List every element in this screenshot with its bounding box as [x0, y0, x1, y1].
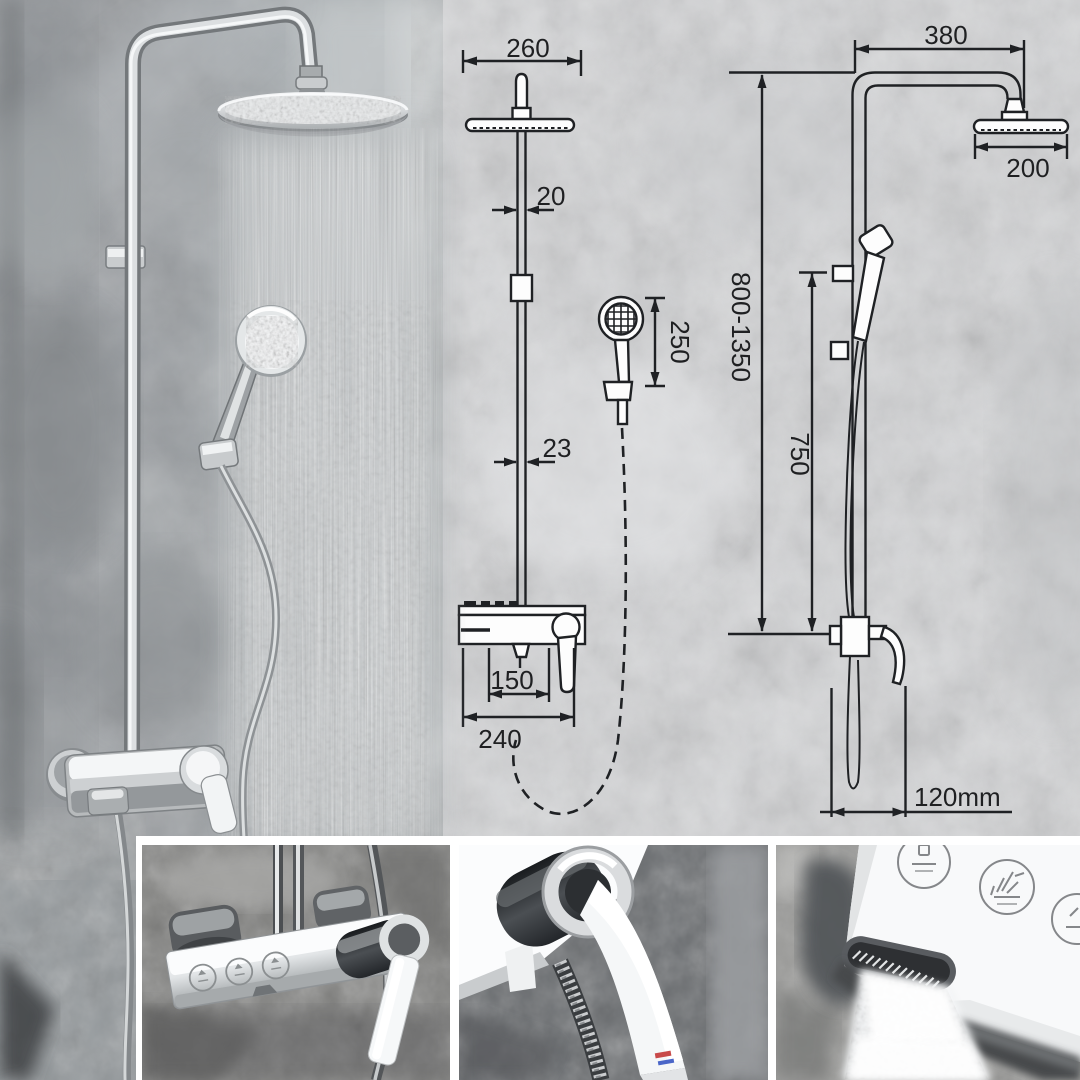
svg-text:750: 750 [785, 432, 815, 475]
svg-text:120mm: 120mm [914, 782, 1001, 812]
svg-text:250: 250 [665, 320, 695, 363]
svg-text:23: 23 [543, 433, 572, 463]
svg-text:800-1350: 800-1350 [726, 272, 756, 382]
svg-text:150: 150 [490, 665, 533, 695]
svg-text:20: 20 [537, 181, 566, 211]
svg-text:200: 200 [1006, 153, 1049, 183]
svg-text:260: 260 [506, 33, 549, 63]
svg-text:240: 240 [478, 724, 521, 754]
svg-text:380: 380 [924, 20, 967, 50]
